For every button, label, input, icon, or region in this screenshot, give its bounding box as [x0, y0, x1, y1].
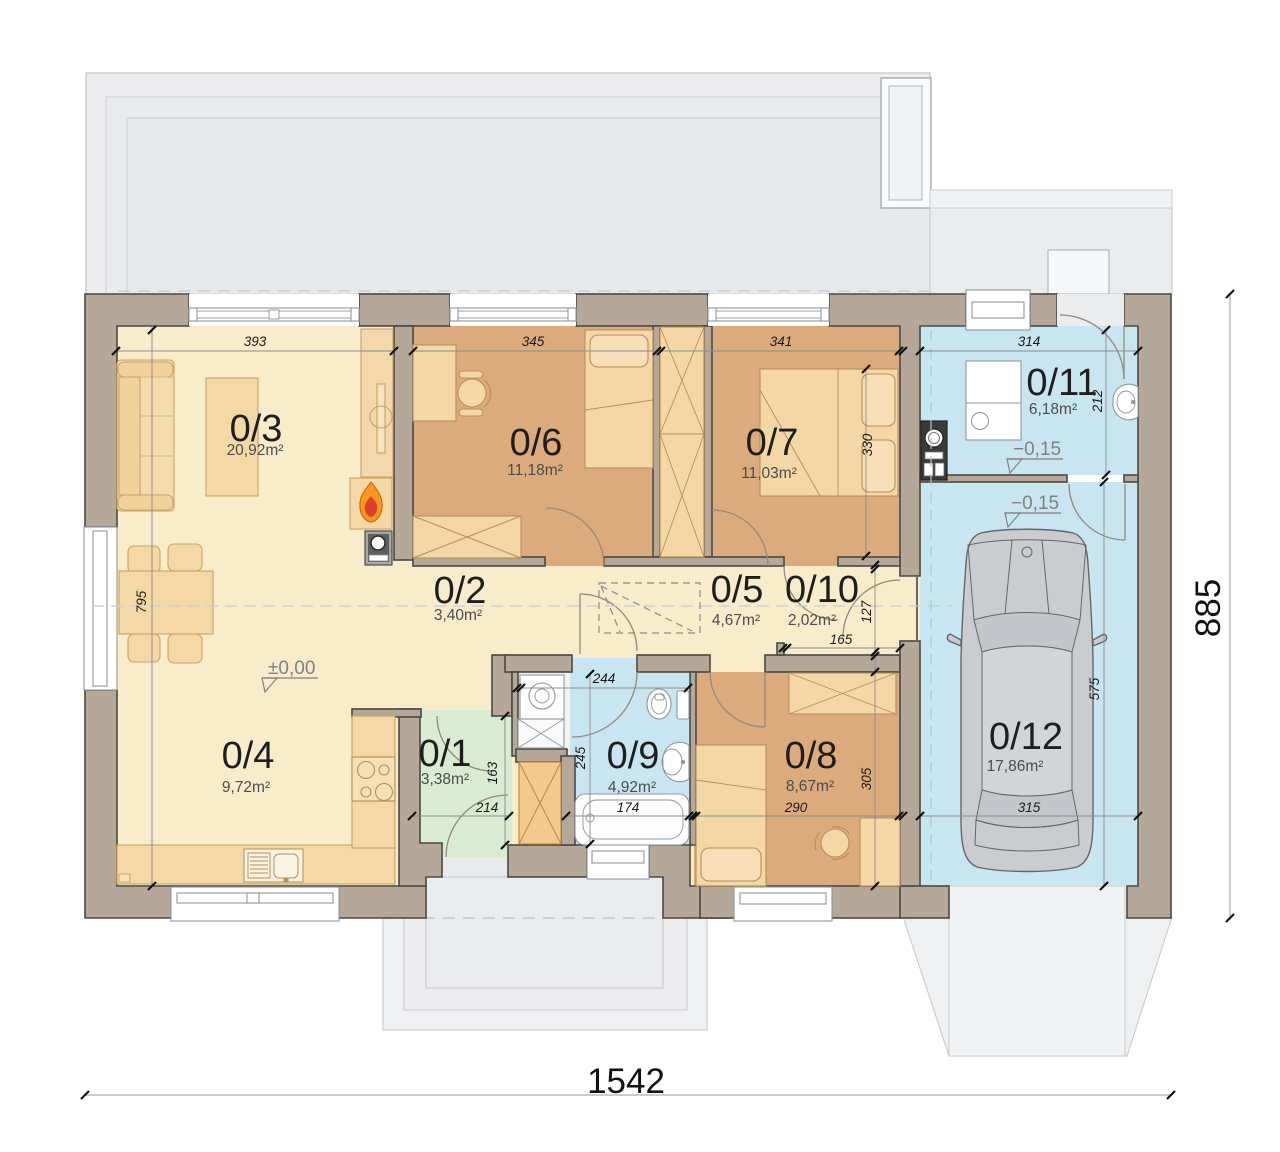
svg-text:305: 305 [859, 767, 874, 790]
svg-text:0/7: 0/7 [746, 422, 799, 464]
svg-text:314: 314 [1018, 334, 1041, 349]
svg-text:0/9: 0/9 [607, 735, 660, 777]
svg-text:20,92m²: 20,92m² [227, 442, 284, 459]
svg-text:0/2: 0/2 [434, 570, 487, 612]
svg-text:245: 245 [573, 746, 588, 770]
svg-text:290: 290 [784, 800, 808, 815]
svg-text:127: 127 [859, 600, 874, 623]
svg-text:8,67m²: 8,67m² [786, 778, 834, 795]
svg-text:−0,15: −0,15 [1011, 493, 1059, 514]
svg-text:4,67m²: 4,67m² [712, 612, 760, 629]
svg-text:−0,15: −0,15 [1013, 439, 1061, 460]
svg-text:244: 244 [592, 671, 616, 686]
svg-text:2,02m²: 2,02m² [788, 612, 836, 629]
svg-text:6,18m²: 6,18m² [1029, 401, 1077, 418]
svg-text:174: 174 [617, 800, 640, 815]
svg-text:11,18m²: 11,18m² [507, 462, 563, 479]
svg-text:341: 341 [770, 334, 793, 349]
svg-text:214: 214 [475, 800, 499, 815]
svg-text:0/8: 0/8 [785, 735, 838, 777]
svg-text:795: 795 [134, 590, 149, 613]
svg-text:165: 165 [830, 632, 853, 647]
svg-text:3,38m²: 3,38m² [421, 771, 469, 788]
svg-text:330: 330 [860, 433, 875, 456]
svg-text:4,92m²: 4,92m² [608, 779, 656, 796]
svg-text:315: 315 [1018, 800, 1041, 815]
svg-text:0/11: 0/11 [1026, 362, 1097, 404]
svg-text:0/5: 0/5 [711, 569, 764, 611]
svg-text:885: 885 [1189, 579, 1228, 637]
svg-text:345: 345 [522, 334, 545, 349]
svg-text:0/10: 0/10 [785, 569, 859, 611]
svg-text:575: 575 [1087, 677, 1102, 700]
svg-text:1542: 1542 [587, 1062, 665, 1101]
svg-text:0/1: 0/1 [419, 733, 472, 775]
svg-text:0/6: 0/6 [510, 422, 563, 464]
svg-text:3,40m²: 3,40m² [434, 607, 482, 624]
svg-text:0/4: 0/4 [222, 735, 275, 777]
svg-text:393: 393 [244, 334, 267, 349]
svg-text:9,72m²: 9,72m² [222, 779, 270, 796]
svg-text:163: 163 [485, 761, 500, 784]
svg-text:±0,00: ±0,00 [268, 658, 315, 679]
svg-text:11,03m²: 11,03m² [741, 465, 797, 482]
svg-text:0/12: 0/12 [989, 716, 1063, 758]
svg-text:17,86m²: 17,86m² [987, 758, 1044, 775]
